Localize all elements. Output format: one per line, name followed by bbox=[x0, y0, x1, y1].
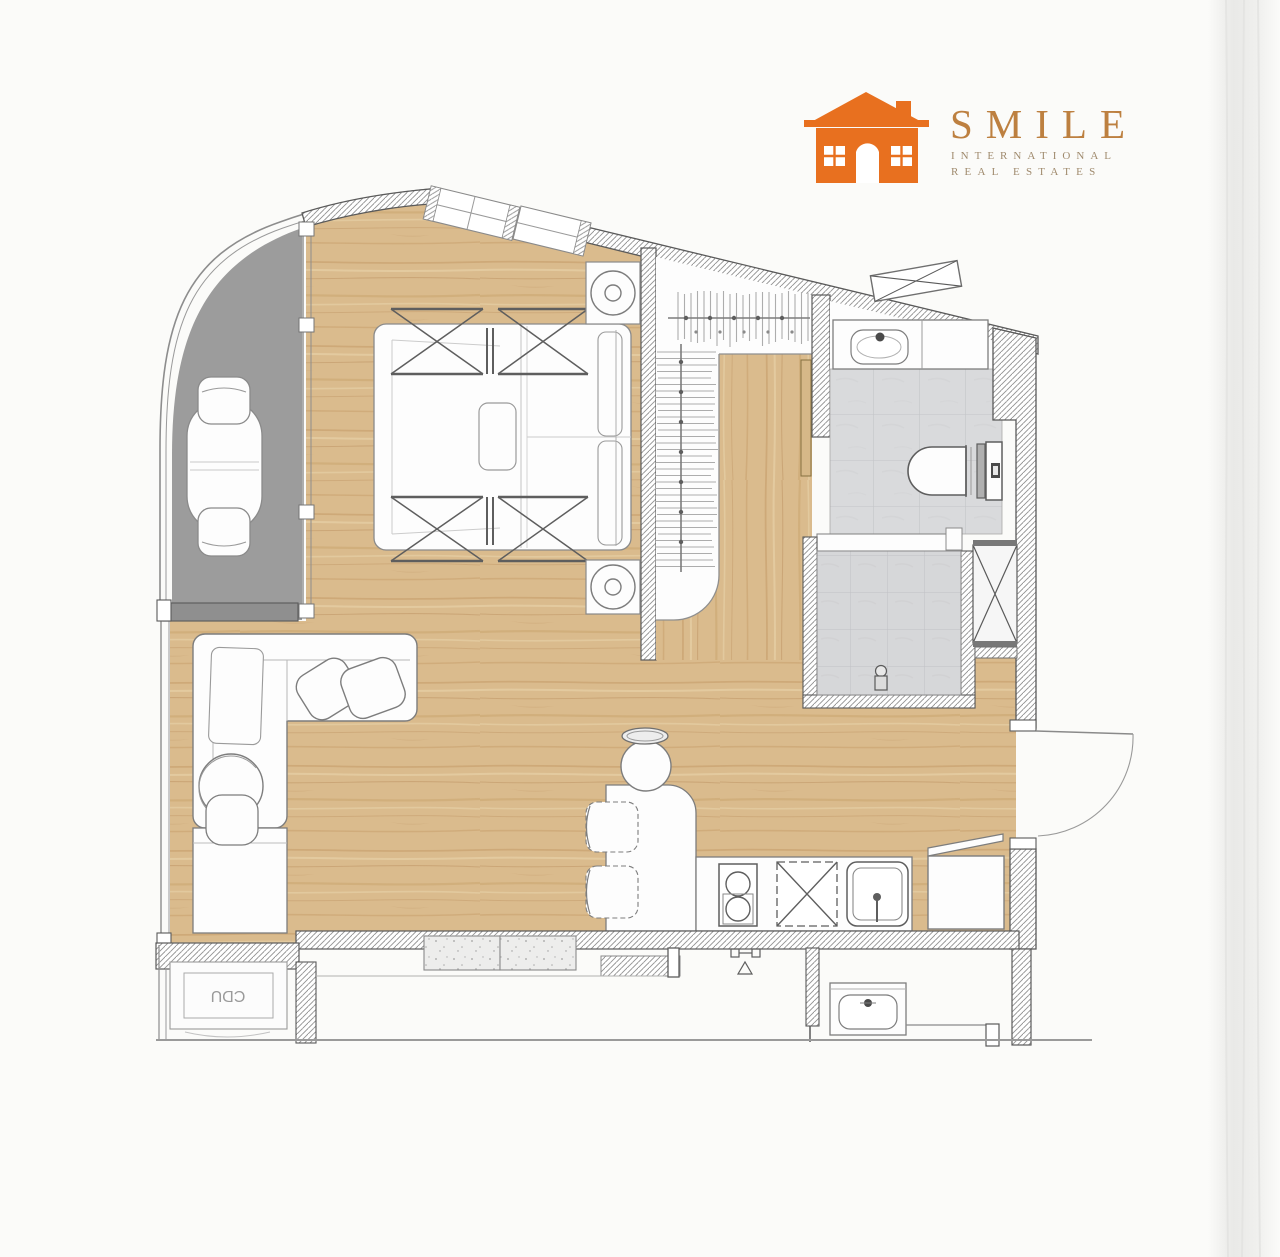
svg-text:INTERNATIONAL: INTERNATIONAL bbox=[951, 150, 1117, 162]
svg-text:REAL ESTATES: REAL ESTATES bbox=[951, 166, 1101, 178]
svg-text:CDU: CDU bbox=[211, 987, 246, 1004]
svg-text:SMILE: SMILE bbox=[950, 101, 1138, 147]
